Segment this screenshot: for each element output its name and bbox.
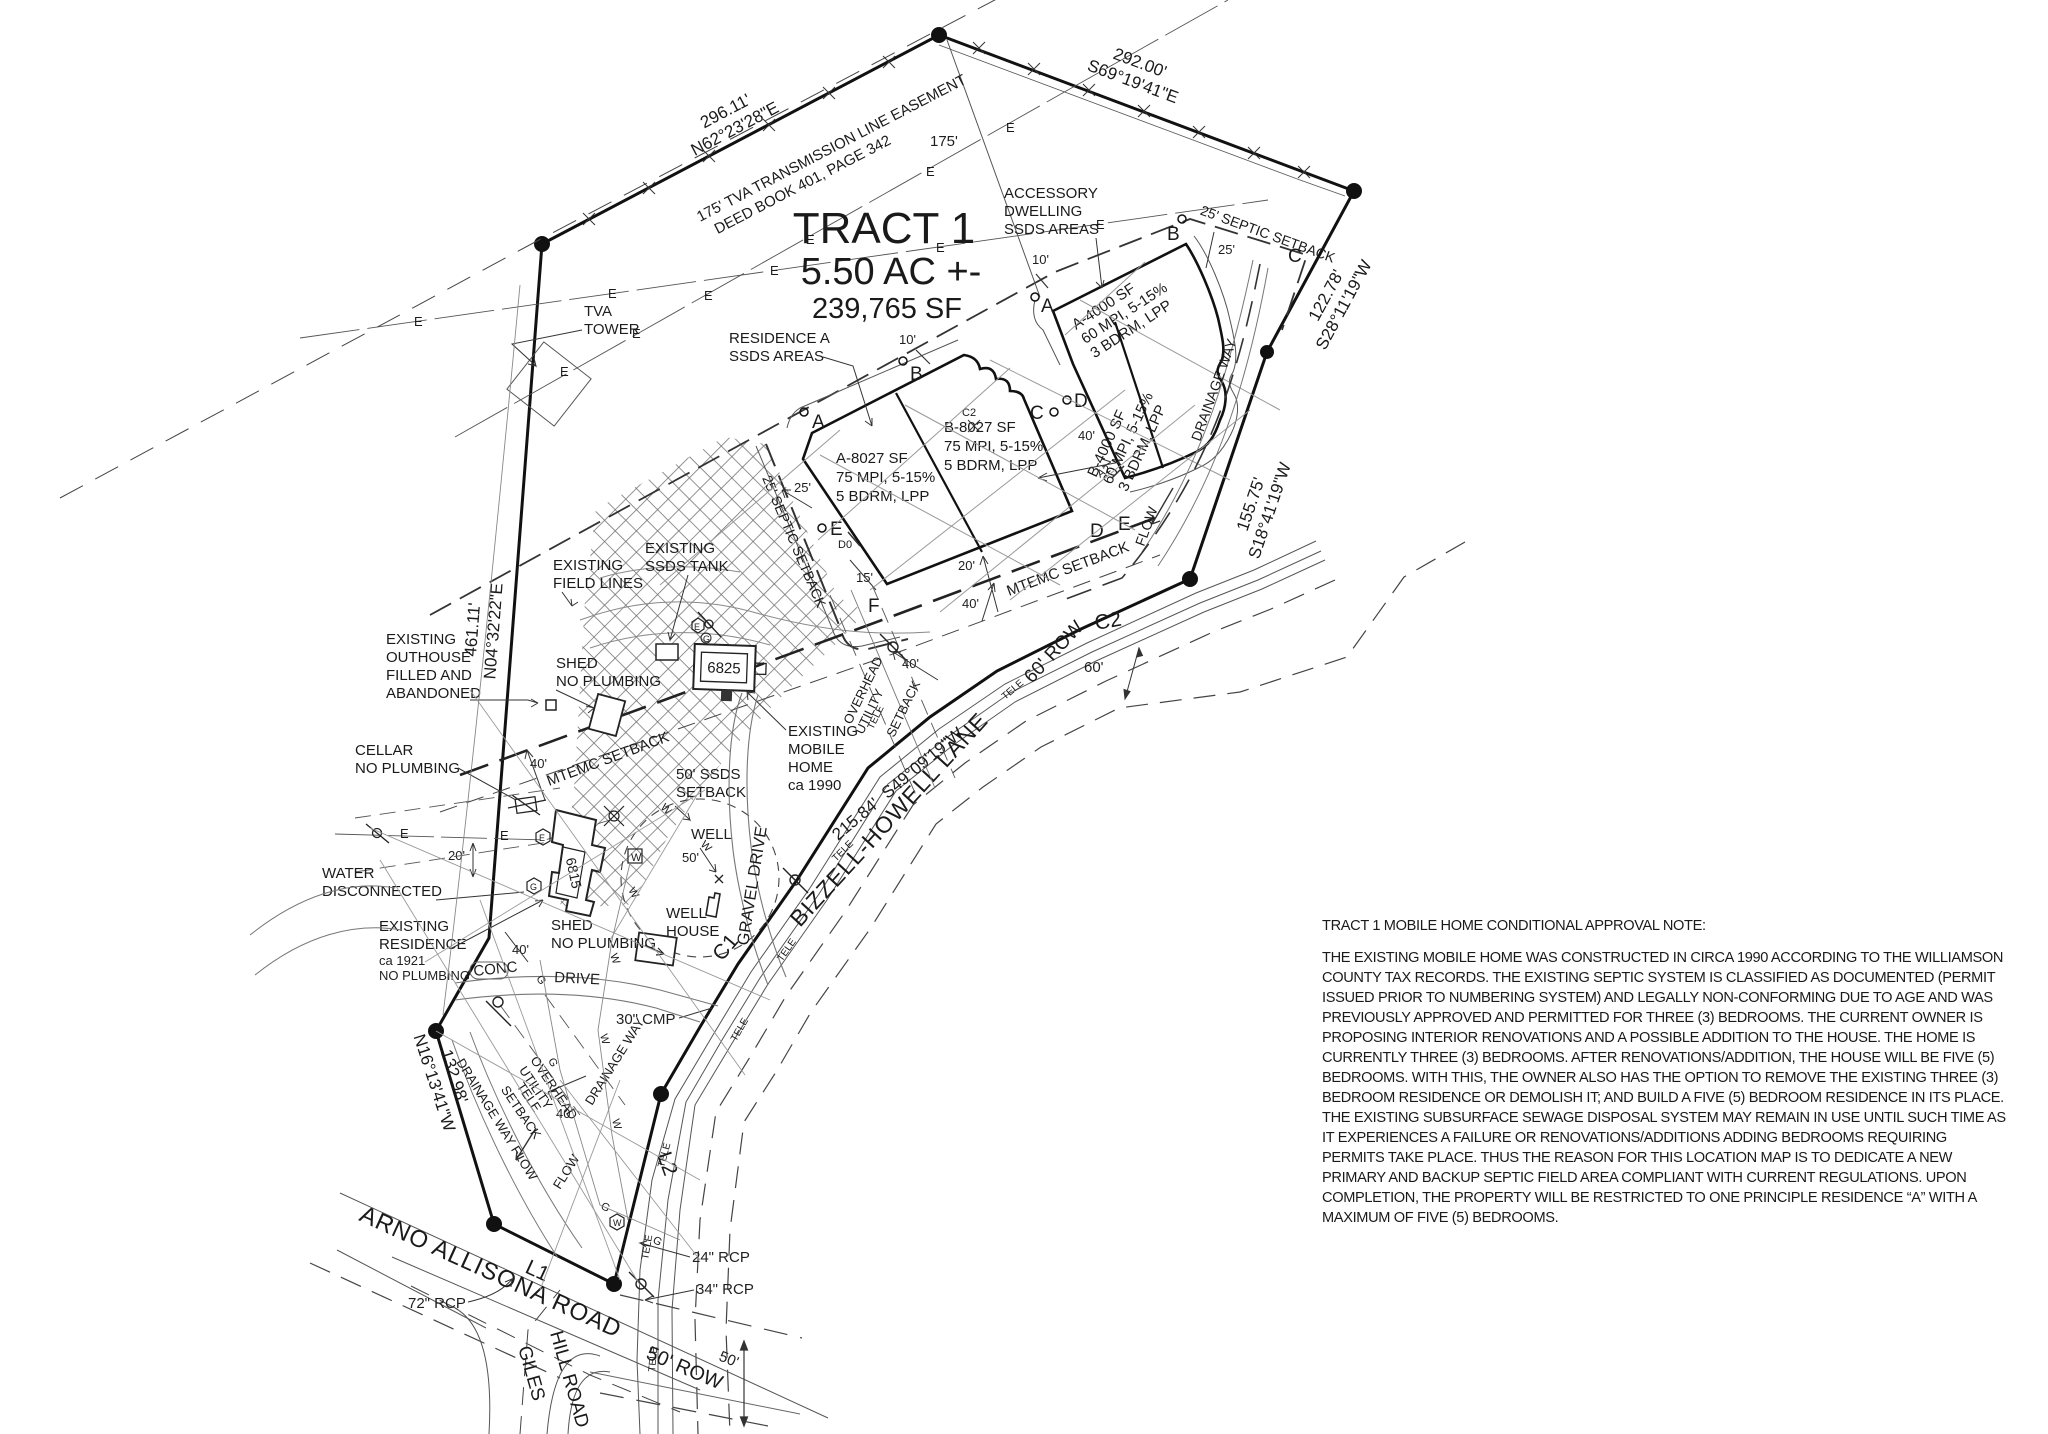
svg-text:E: E xyxy=(608,286,617,301)
svg-text:PREVIOUSLY APPROVED AND PERMIT: PREVIOUSLY APPROVED AND PERMITTED FOR TH… xyxy=(1322,1010,1983,1026)
svg-text:72" RCP: 72" RCP xyxy=(408,1295,466,1312)
svg-text:SSDS AREAS: SSDS AREAS xyxy=(1004,221,1099,238)
svg-text:HOME: HOME xyxy=(788,759,833,776)
svg-text:WELL: WELL xyxy=(691,826,732,843)
svg-text:DWELLING: DWELLING xyxy=(1004,203,1082,220)
svg-text:THE EXISTING MOBILE HOME WAS C: THE EXISTING MOBILE HOME WAS CONSTRUCTED… xyxy=(1322,950,2003,966)
svg-text:OUTHOUSE: OUTHOUSE xyxy=(386,649,471,666)
svg-text:60': 60' xyxy=(1084,659,1104,676)
svg-text:E: E xyxy=(414,314,423,329)
svg-text:TOWER: TOWER xyxy=(584,321,640,338)
svg-text:PROPOSING INTERIOR RENOVATIONS: PROPOSING INTERIOR RENOVATIONS AND A POS… xyxy=(1322,1030,1976,1046)
svg-text:25': 25' xyxy=(1218,242,1235,257)
svg-text:A: A xyxy=(812,412,825,433)
svg-text:WATER: WATER xyxy=(322,865,375,882)
svg-text:TVA: TVA xyxy=(584,303,612,320)
svg-text:C2: C2 xyxy=(1093,608,1123,635)
svg-text:DISCONNECTED: DISCONNECTED xyxy=(322,883,442,900)
svg-text:C: C xyxy=(1030,403,1044,424)
svg-text:RESIDENCE A: RESIDENCE A xyxy=(729,330,830,347)
svg-text:20': 20' xyxy=(958,558,975,573)
svg-text:6825: 6825 xyxy=(707,659,741,677)
svg-text:PERMITS TAKE PLACE. THUS THE R: PERMITS TAKE PLACE. THUS THE REASON FOR … xyxy=(1322,1150,1953,1166)
svg-text:B-8027 SF: B-8027 SF xyxy=(944,419,1016,436)
svg-text:D: D xyxy=(1074,391,1088,412)
svg-text:10': 10' xyxy=(1032,252,1049,267)
svg-text:A-8027 SF: A-8027 SF xyxy=(836,450,908,467)
svg-text:10': 10' xyxy=(899,332,916,347)
svg-text:5.50 AC +-: 5.50 AC +- xyxy=(801,251,982,293)
svg-text:FIELD LINES: FIELD LINES xyxy=(553,575,643,592)
svg-text:24" RCP: 24" RCP xyxy=(692,1249,750,1266)
svg-text:50' SSDS: 50' SSDS xyxy=(676,766,741,783)
svg-text:MAXIMUM OF FIVE (5) BEDROOMS.: MAXIMUM OF FIVE (5) BEDROOMS. xyxy=(1322,1210,1558,1226)
svg-text:TELE: TELE xyxy=(647,1346,660,1372)
svg-text:W: W xyxy=(613,1218,622,1228)
svg-text:ACCESSORY: ACCESSORY xyxy=(1004,185,1098,202)
svg-text:E: E xyxy=(926,164,935,179)
svg-text:75 MPI, 5-15%: 75 MPI, 5-15% xyxy=(944,438,1043,455)
svg-text:SETBACK: SETBACK xyxy=(676,784,746,801)
svg-text:E: E xyxy=(539,833,545,843)
svg-text:G: G xyxy=(703,634,710,644)
svg-text:E: E xyxy=(770,263,779,278)
svg-text:EXISTING: EXISTING xyxy=(386,631,456,648)
svg-text:COUNTY TAX RECORDS. THE EXISTI: COUNTY TAX RECORDS. THE EXISTING SEPTIC … xyxy=(1322,970,1996,986)
svg-text:IT EXPERIENCES A FAILURE OR RE: IT EXPERIENCES A FAILURE OR RENOVATIONS/… xyxy=(1322,1130,1947,1146)
svg-text:ABANDONED: ABANDONED xyxy=(386,685,481,702)
svg-text:BEDROOMS. WITH THIS, THE OWNER: BEDROOMS. WITH THIS, THE OWNER ALSO HAS … xyxy=(1322,1070,1998,1086)
svg-text:PRIMARY AND BACKUP SEPTIC FIEL: PRIMARY AND BACKUP SEPTIC FIELD AREA COM… xyxy=(1322,1170,1967,1186)
svg-text:ca 1921: ca 1921 xyxy=(379,953,425,968)
svg-text:40': 40' xyxy=(1078,428,1095,443)
svg-text:ISSUED PRIOR TO NUMBERING SYST: ISSUED PRIOR TO NUMBERING SYSTEM) AND LE… xyxy=(1322,990,1993,1006)
svg-text:E: E xyxy=(400,826,409,841)
svg-text:175': 175' xyxy=(930,133,958,150)
svg-text:DRIVE: DRIVE xyxy=(554,969,601,988)
svg-text:40': 40' xyxy=(902,656,919,671)
svg-text:BEDROOM RESIDENCE OR DEMOLISH: BEDROOM RESIDENCE OR DEMOLISH IT; AND BU… xyxy=(1322,1090,2004,1106)
svg-text:SHED: SHED xyxy=(551,917,593,934)
svg-text:COMPLETION, THE PROPERTY WILL: COMPLETION, THE PROPERTY WILL BE RESTRIC… xyxy=(1322,1190,1978,1206)
svg-text:5 BDRM, LPP: 5 BDRM, LPP xyxy=(836,488,929,505)
svg-text:34" RCP: 34" RCP xyxy=(696,1281,754,1298)
svg-text:25': 25' xyxy=(794,480,811,495)
svg-text:SSDS TANK: SSDS TANK xyxy=(645,558,729,575)
svg-text:239,765 SF: 239,765 SF xyxy=(812,293,962,325)
svg-text:40': 40' xyxy=(530,756,547,771)
svg-text:SHED: SHED xyxy=(556,655,598,672)
svg-text:50': 50' xyxy=(682,850,699,865)
svg-text:5 BDRM, LPP: 5 BDRM, LPP xyxy=(944,457,1037,474)
svg-text:EXISTING: EXISTING xyxy=(379,918,449,935)
svg-text:15': 15' xyxy=(856,570,873,585)
svg-text:WELL: WELL xyxy=(666,905,707,922)
svg-text:TRACT 1: TRACT 1 xyxy=(793,204,976,253)
svg-text:E: E xyxy=(500,828,509,843)
svg-text:E: E xyxy=(1006,120,1015,135)
svg-text:C: C xyxy=(1288,246,1302,267)
svg-text:NO PLUMBING: NO PLUMBING xyxy=(551,935,656,952)
svg-text:40': 40' xyxy=(962,596,979,611)
svg-text:SSDS AREAS: SSDS AREAS xyxy=(729,348,824,365)
svg-text:E: E xyxy=(830,519,843,540)
svg-text:B: B xyxy=(1167,224,1180,245)
svg-text:E: E xyxy=(694,622,700,632)
svg-text:E: E xyxy=(704,288,713,303)
svg-text:FILLED AND: FILLED AND xyxy=(386,667,472,684)
svg-text:MOBILE: MOBILE xyxy=(788,741,845,758)
svg-text:ca 1990: ca 1990 xyxy=(788,777,841,794)
svg-text:A: A xyxy=(1041,296,1054,317)
svg-text:G: G xyxy=(530,882,537,892)
svg-text:CELLAR: CELLAR xyxy=(355,742,414,759)
svg-text:THE EXISTING SUBSURFACE SEWAGE: THE EXISTING SUBSURFACE SEWAGE DISPOSAL … xyxy=(1322,1110,2006,1126)
svg-text:NO PLUMBING: NO PLUMBING xyxy=(379,968,470,983)
svg-text:B: B xyxy=(910,364,923,385)
svg-text:D0: D0 xyxy=(838,539,852,551)
svg-text:NO PLUMBING: NO PLUMBING xyxy=(556,673,661,690)
svg-text:EXISTING: EXISTING xyxy=(645,540,715,557)
svg-text:TRACT 1 MOBILE HOME CONDITIONA: TRACT 1 MOBILE HOME CONDITIONAL APPROVAL… xyxy=(1322,918,1706,934)
svg-text:E: E xyxy=(560,364,569,379)
svg-text:NO PLUMBING: NO PLUMBING xyxy=(355,760,460,777)
svg-text:EXISTING: EXISTING xyxy=(553,557,623,574)
svg-text:CURRENTLY THREE (3) BEDROOMS.: CURRENTLY THREE (3) BEDROOMS. AFTER RENO… xyxy=(1322,1050,1994,1066)
svg-text:W: W xyxy=(631,852,642,864)
svg-text:EXISTING: EXISTING xyxy=(788,723,858,740)
